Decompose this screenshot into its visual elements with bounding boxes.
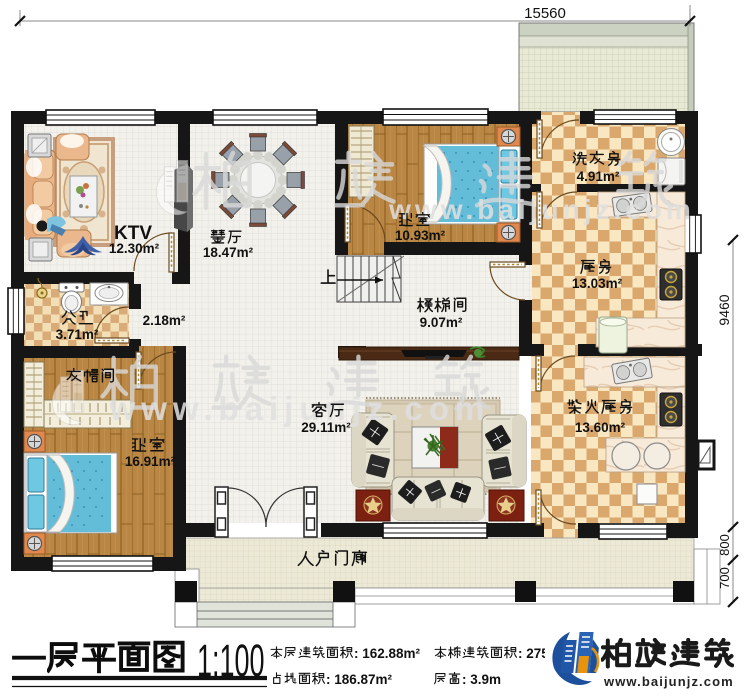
svg-text:10.93m²: 10.93m² (395, 228, 446, 243)
svg-text:700: 700 (717, 567, 732, 589)
svg-text:www.baijunjz.com: www.baijunjz.com (603, 674, 734, 689)
svg-text:18.47m²: 18.47m² (203, 245, 254, 260)
svg-text:1:100: 1:100 (197, 635, 265, 686)
svg-text:: 162.88m²: : 162.88m² (354, 646, 421, 661)
svg-text:www.baijunjz.com: www.baijunjz.com (388, 194, 695, 225)
svg-text:12.30m²: 12.30m² (109, 241, 160, 256)
svg-text:4.91m²: 4.91m² (577, 169, 620, 184)
svg-text:16.91m²: 16.91m² (125, 454, 176, 469)
svg-text:13.03m²: 13.03m² (572, 276, 623, 291)
svg-text:13.60m²: 13.60m² (575, 420, 626, 435)
svg-text:3.71m²: 3.71m² (56, 327, 99, 342)
svg-text:: 186.87m²: : 186.87m² (326, 672, 393, 687)
svg-text:2.18m²: 2.18m² (143, 313, 186, 328)
svg-text:: 3.9m: : 3.9m (462, 672, 501, 687)
svg-text:9.07m²: 9.07m² (420, 315, 463, 330)
svg-text:15560: 15560 (524, 5, 566, 22)
svg-text:800: 800 (717, 534, 732, 556)
svg-text:29.11m²: 29.11m² (301, 420, 351, 435)
svg-text:9460: 9460 (716, 294, 732, 325)
svg-text:www.baijunjz.com: www.baijunjz.com (109, 390, 491, 427)
